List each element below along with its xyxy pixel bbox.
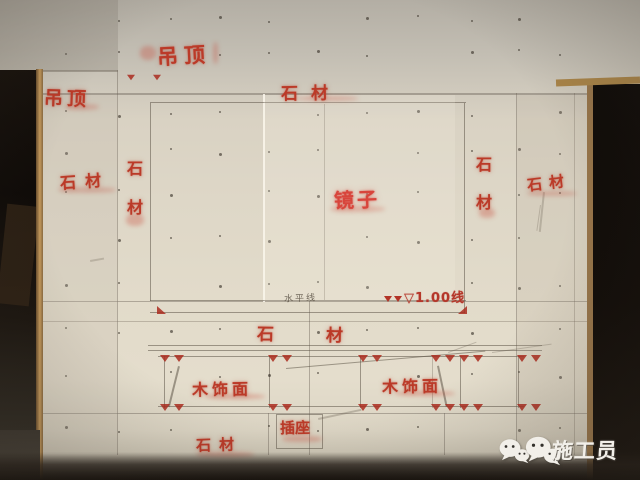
screw-dot bbox=[317, 372, 319, 374]
pencil-line bbox=[444, 413, 445, 455]
screw-dot bbox=[366, 286, 369, 289]
screw-dot bbox=[118, 51, 120, 53]
screw-dot bbox=[65, 284, 68, 287]
registration-mark bbox=[431, 355, 455, 362]
screw-dot bbox=[219, 153, 222, 156]
screw-dot bbox=[170, 237, 172, 239]
screw-dot bbox=[219, 111, 221, 113]
screw-dot bbox=[268, 21, 270, 23]
stencil-label-stone-top: 石材 bbox=[281, 78, 341, 104]
screw-dot bbox=[417, 110, 420, 113]
pencil-line bbox=[117, 70, 118, 455]
screw-dot bbox=[471, 332, 474, 335]
watermark-text: 施工员 bbox=[551, 435, 619, 465]
registration-mark bbox=[459, 404, 483, 411]
stencil-label-wood-veneer-left: 木饰面 bbox=[192, 375, 252, 400]
pencil-line bbox=[574, 93, 575, 455]
pencil-line bbox=[268, 413, 269, 455]
screw-dot bbox=[417, 191, 419, 193]
screw-dot bbox=[65, 327, 67, 329]
pencil-line bbox=[360, 356, 361, 408]
screw-dot bbox=[65, 426, 68, 429]
screw-dot bbox=[170, 371, 172, 373]
registration-mark bbox=[160, 404, 184, 411]
screw-dot bbox=[518, 148, 521, 151]
screw-dot bbox=[471, 115, 473, 117]
screw-dot bbox=[518, 429, 521, 432]
screw-dot bbox=[366, 17, 369, 20]
screw-dot bbox=[417, 152, 419, 154]
screw-dot bbox=[317, 50, 320, 53]
screw-dot bbox=[268, 240, 271, 243]
pencil-line bbox=[269, 356, 270, 408]
stencil-label-mirror: 镜子 bbox=[334, 183, 381, 214]
screw-dot bbox=[559, 111, 562, 114]
pencil-line bbox=[150, 312, 465, 313]
registration-mark bbox=[160, 355, 184, 362]
registration-mark bbox=[358, 404, 382, 411]
screw-dot bbox=[471, 20, 473, 22]
screw-dot bbox=[471, 150, 473, 152]
screw-dot bbox=[268, 52, 270, 54]
screw-dot bbox=[219, 54, 221, 56]
registration-mark bbox=[153, 75, 161, 81]
screw-dot bbox=[268, 151, 270, 153]
screw-dot bbox=[471, 282, 473, 284]
screw-dot bbox=[317, 430, 319, 432]
stencil-label-socket: 插座 bbox=[280, 417, 310, 439]
screw-dot bbox=[268, 190, 270, 192]
stencil-label-horizontal-line-note: 水平线 bbox=[284, 290, 317, 304]
pencil-line bbox=[150, 103, 151, 301]
screw-dot bbox=[518, 49, 520, 51]
stencil-label-wood-veneer-right: 木饰面 bbox=[382, 372, 442, 397]
screw-dot bbox=[559, 328, 561, 330]
screw-dot bbox=[559, 54, 561, 56]
screw-dot bbox=[366, 428, 369, 431]
screw-dot bbox=[518, 237, 520, 239]
screw-dot bbox=[518, 18, 521, 21]
screw-dot bbox=[366, 112, 368, 114]
screw-dot bbox=[366, 55, 368, 57]
screw-dot bbox=[118, 431, 120, 433]
screw-dot bbox=[170, 18, 172, 20]
screw-dot bbox=[268, 425, 270, 427]
screw-dot bbox=[118, 332, 120, 334]
stencil-label-ceiling-top: 吊顶 bbox=[156, 39, 211, 72]
screw-dot bbox=[471, 373, 473, 375]
screw-dot bbox=[170, 330, 173, 333]
plasterboard-wall bbox=[0, 0, 640, 480]
registration-mark bbox=[517, 355, 541, 362]
screw-dot bbox=[518, 194, 520, 196]
stencil-label-stone-left: 石材 bbox=[59, 166, 111, 193]
screw-dot bbox=[219, 235, 221, 237]
screw-dot bbox=[170, 429, 172, 431]
upper-wall-plane bbox=[0, 0, 118, 71]
level-triangle-mark bbox=[394, 296, 402, 302]
pencil-line bbox=[464, 103, 465, 313]
screw-dot bbox=[170, 194, 173, 197]
screw-dot bbox=[518, 287, 521, 290]
screw-dot bbox=[317, 281, 319, 283]
registration-mark bbox=[268, 404, 292, 411]
pencil-line bbox=[516, 93, 517, 455]
screw-dot bbox=[219, 285, 222, 288]
right-wood-trim bbox=[587, 84, 593, 480]
screw-dot bbox=[219, 328, 221, 330]
screw-dot bbox=[65, 152, 68, 155]
construction-wall-photo: 吊顶吊顶石材石材石材镜子石材石材▽1.00线水平线石材木饰面木饰面插座石材 施工… bbox=[0, 0, 640, 480]
corner-mark bbox=[458, 306, 467, 314]
screw-dot bbox=[559, 285, 561, 287]
corner-mark bbox=[157, 306, 166, 314]
screw-dot bbox=[268, 374, 271, 377]
paint-smudge bbox=[213, 42, 218, 64]
screw-dot bbox=[518, 371, 520, 373]
screw-dot bbox=[219, 16, 222, 19]
screw-dot bbox=[118, 239, 121, 242]
screw-dot bbox=[559, 153, 561, 155]
screw-dot bbox=[366, 236, 368, 238]
screw-dot bbox=[170, 148, 172, 150]
screw-dot bbox=[417, 15, 419, 17]
screw-dot bbox=[417, 327, 419, 329]
stencil-label-level-mark: ▽1.00线 bbox=[384, 287, 465, 306]
screw-dot bbox=[471, 239, 473, 241]
screw-dot bbox=[268, 283, 270, 285]
screw-dot bbox=[559, 376, 562, 379]
pencil-line bbox=[460, 356, 461, 408]
stencil-label-stone-left-vertical: 石材 bbox=[127, 155, 143, 218]
paint-smudge bbox=[140, 46, 156, 60]
registration-mark bbox=[358, 355, 382, 362]
screw-dot bbox=[471, 51, 474, 54]
screw-dot bbox=[559, 427, 561, 429]
registration-mark bbox=[268, 355, 292, 362]
registration-mark bbox=[127, 75, 135, 81]
screw-dot bbox=[417, 426, 419, 428]
screw-dot bbox=[118, 282, 120, 284]
screw-dot bbox=[118, 189, 120, 191]
registration-mark bbox=[459, 355, 483, 362]
screw-dot bbox=[317, 149, 319, 151]
left-wood-trim bbox=[36, 69, 43, 480]
screw-dot bbox=[417, 241, 420, 244]
pencil-line bbox=[263, 94, 265, 302]
screw-dot bbox=[65, 375, 67, 377]
screw-dot bbox=[170, 113, 172, 115]
registration-mark bbox=[517, 404, 541, 411]
stencil-label-ceiling-left: 吊顶 bbox=[44, 83, 91, 112]
watermark: 施工员 bbox=[498, 434, 618, 466]
stencil-label-stone-right-vertical: 石材 bbox=[476, 151, 492, 213]
pencil-line bbox=[518, 356, 519, 408]
pencil-line bbox=[324, 104, 325, 300]
registration-mark bbox=[431, 404, 455, 411]
level-triangle-mark bbox=[384, 296, 392, 302]
screw-dot bbox=[118, 115, 121, 118]
screw-dot bbox=[317, 114, 319, 116]
stencil-label-stone-middle: 石材 bbox=[257, 320, 395, 347]
pencil-line bbox=[164, 356, 165, 408]
screw-dot bbox=[317, 195, 320, 198]
screw-dot bbox=[118, 20, 120, 22]
